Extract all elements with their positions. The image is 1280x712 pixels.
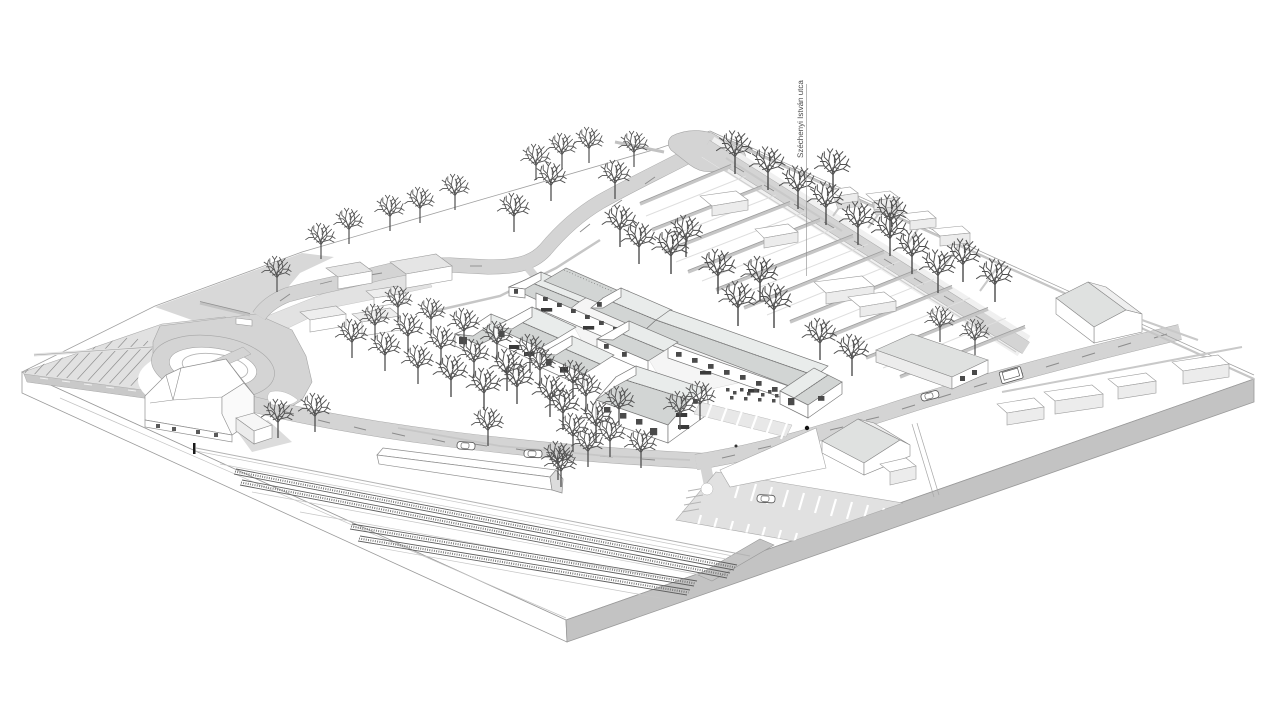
- svg-text:Széchenyi István utca: Széchenyi István utca: [796, 80, 805, 158]
